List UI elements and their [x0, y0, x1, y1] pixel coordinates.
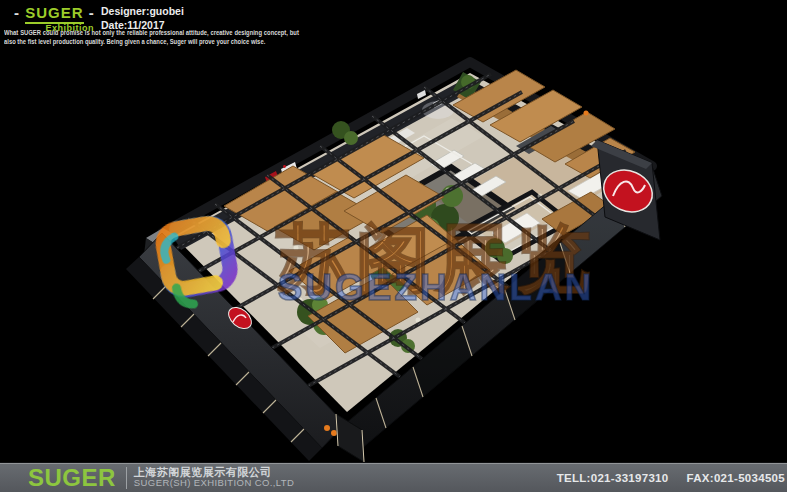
brand-dash-right: - [89, 4, 95, 21]
footer-divider [126, 467, 127, 489]
watermark-latin: SUGEZHANLAN [278, 267, 595, 308]
fax-number: FAX:021-5034505 [687, 472, 785, 484]
brand-dash-left: - [14, 4, 20, 21]
presentation-board: - SUGER - Exhibition Designer:guobei Dat… [0, 0, 787, 492]
company-name-en: SUGER(SH) EXHIBITION CO.,LTD [134, 478, 294, 489]
promise-paragraph: What SUGER could promise is not only the… [4, 28, 299, 46]
brand-name: SUGER [25, 4, 83, 24]
footer-company-block: SUGER 上海苏阁展览展示有限公司 SUGER(SH) EXHIBITION … [0, 466, 294, 490]
footer-brand-logo: SUGER [28, 466, 116, 490]
designer-label: Designer:guobei [101, 5, 184, 19]
booth-render: 苏阁展览 SUGEZHANLAN [0, 0, 787, 492]
orange-chair [584, 111, 589, 116]
brand-wordmark: - SUGER - [14, 4, 94, 21]
footer-bar: SUGER 上海苏阁展览展示有限公司 SUGER(SH) EXHIBITION … [0, 462, 787, 492]
footer-company-names: 上海苏阁展览展示有限公司 SUGER(SH) EXHIBITION CO.,LT… [134, 466, 294, 490]
phone-number: TELL:021-33197310 [557, 472, 669, 484]
footer-contact: TELL:021-33197310 FAX:021-5034505 [557, 472, 787, 484]
